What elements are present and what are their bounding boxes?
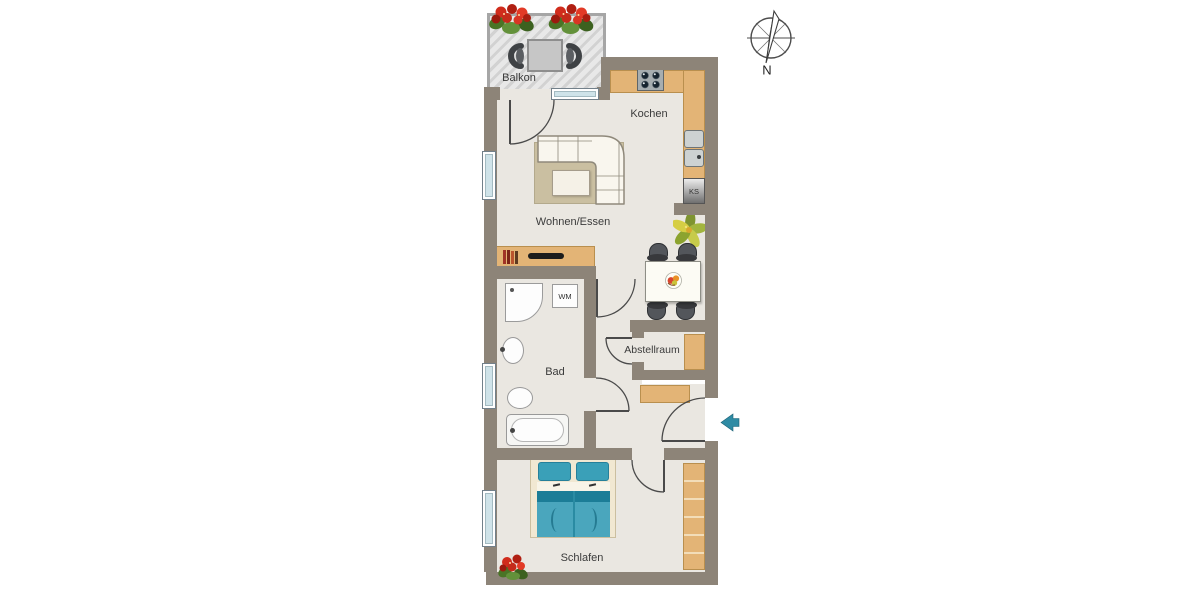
blanket-divider [573, 491, 575, 537]
wardrobe [683, 463, 705, 570]
room-label-storage: Abstellraum [624, 344, 679, 356]
window-bedroom [482, 490, 496, 547]
kitchen-sink [684, 130, 704, 168]
chair-base [676, 301, 697, 309]
storage-wall-gap [642, 380, 705, 384]
balcony-chair-icon [564, 42, 582, 70]
bed-blanket [537, 491, 610, 537]
sideboard [496, 246, 595, 267]
wall-bath-right-lower [584, 411, 596, 448]
blanket-fold-icon [551, 508, 563, 532]
window-bath [482, 363, 496, 409]
balcony-chair-icon [508, 42, 526, 70]
washing-machine-label: WM [558, 292, 571, 301]
sink-basin-lower [684, 149, 704, 167]
wall-bedroom-top-left [484, 448, 632, 460]
floorplan-canvas: KS WM [0, 0, 1200, 600]
entry-arrow-icon [719, 413, 741, 432]
balcony-table [527, 39, 563, 72]
wall-storage-bottom [632, 370, 705, 380]
flower-box-icon [547, 2, 596, 35]
bed-pillow [538, 462, 571, 481]
shower-head-icon [510, 288, 514, 292]
washing-machine: WM [552, 284, 578, 308]
sink-faucet-icon [697, 155, 701, 159]
fruit-bowl-icon [665, 272, 682, 289]
compass-north-label: N [762, 63, 771, 78]
fridge-label: KS [689, 187, 699, 196]
bed-sheet [537, 482, 610, 491]
bedroom-flower-icon [497, 550, 529, 582]
book-icon [507, 250, 510, 264]
toilet [507, 387, 533, 409]
wall-balcony-connector [601, 57, 610, 100]
window-glass [485, 366, 493, 406]
dining-chair [676, 301, 697, 320]
bathtub [506, 414, 569, 446]
room-label-balcony: Balkon [502, 72, 536, 84]
compass-icon [744, 6, 798, 66]
wall-storage-top [630, 320, 705, 332]
hifi-icon [528, 253, 564, 259]
bed-pillow [576, 462, 609, 481]
wall-bedroom-top-right [664, 448, 718, 460]
room-label-bath: Bad [545, 366, 565, 378]
wall-right-upper [705, 57, 718, 398]
dining-chair [676, 243, 697, 262]
bathtub-basin [511, 418, 564, 442]
book-icon [515, 251, 518, 264]
window-glass [554, 91, 596, 97]
flower-box-icon [489, 2, 535, 35]
coffee-table [552, 170, 590, 196]
wall-balcony-left [484, 87, 500, 100]
room-label-living-dining: Wohnen/Essen [536, 216, 610, 228]
wall-kitchen-top [603, 57, 718, 70]
wall-kitchen-stub [674, 203, 718, 215]
storage-shelf [684, 334, 705, 370]
book-icon [503, 250, 506, 264]
window-glass [485, 493, 493, 544]
wall-right-lower [705, 441, 718, 585]
chair-base [647, 301, 668, 309]
book-icon [511, 251, 514, 264]
window-living [482, 151, 496, 200]
wall-storage-left-upper [632, 332, 644, 338]
window-glass [485, 154, 493, 197]
wall-bath-top [484, 266, 596, 279]
window-balcony-door [551, 88, 599, 100]
dining-chair [647, 243, 668, 262]
bath-sink-faucet-icon [500, 347, 505, 352]
double-bed [530, 456, 616, 538]
hall-cabinet [640, 385, 690, 403]
bath-sink [502, 337, 524, 364]
room-label-kitchen: Kochen [630, 108, 667, 120]
wall-bath-right-upper [584, 279, 596, 378]
sink-basin-upper [684, 130, 704, 148]
blanket-fold-icon [585, 508, 597, 532]
fridge: KS [683, 178, 705, 204]
bathtub-faucet-icon [510, 428, 515, 433]
stove-icon [637, 69, 664, 91]
room-label-bedroom: Schlafen [561, 552, 604, 564]
dining-chair [647, 301, 668, 320]
